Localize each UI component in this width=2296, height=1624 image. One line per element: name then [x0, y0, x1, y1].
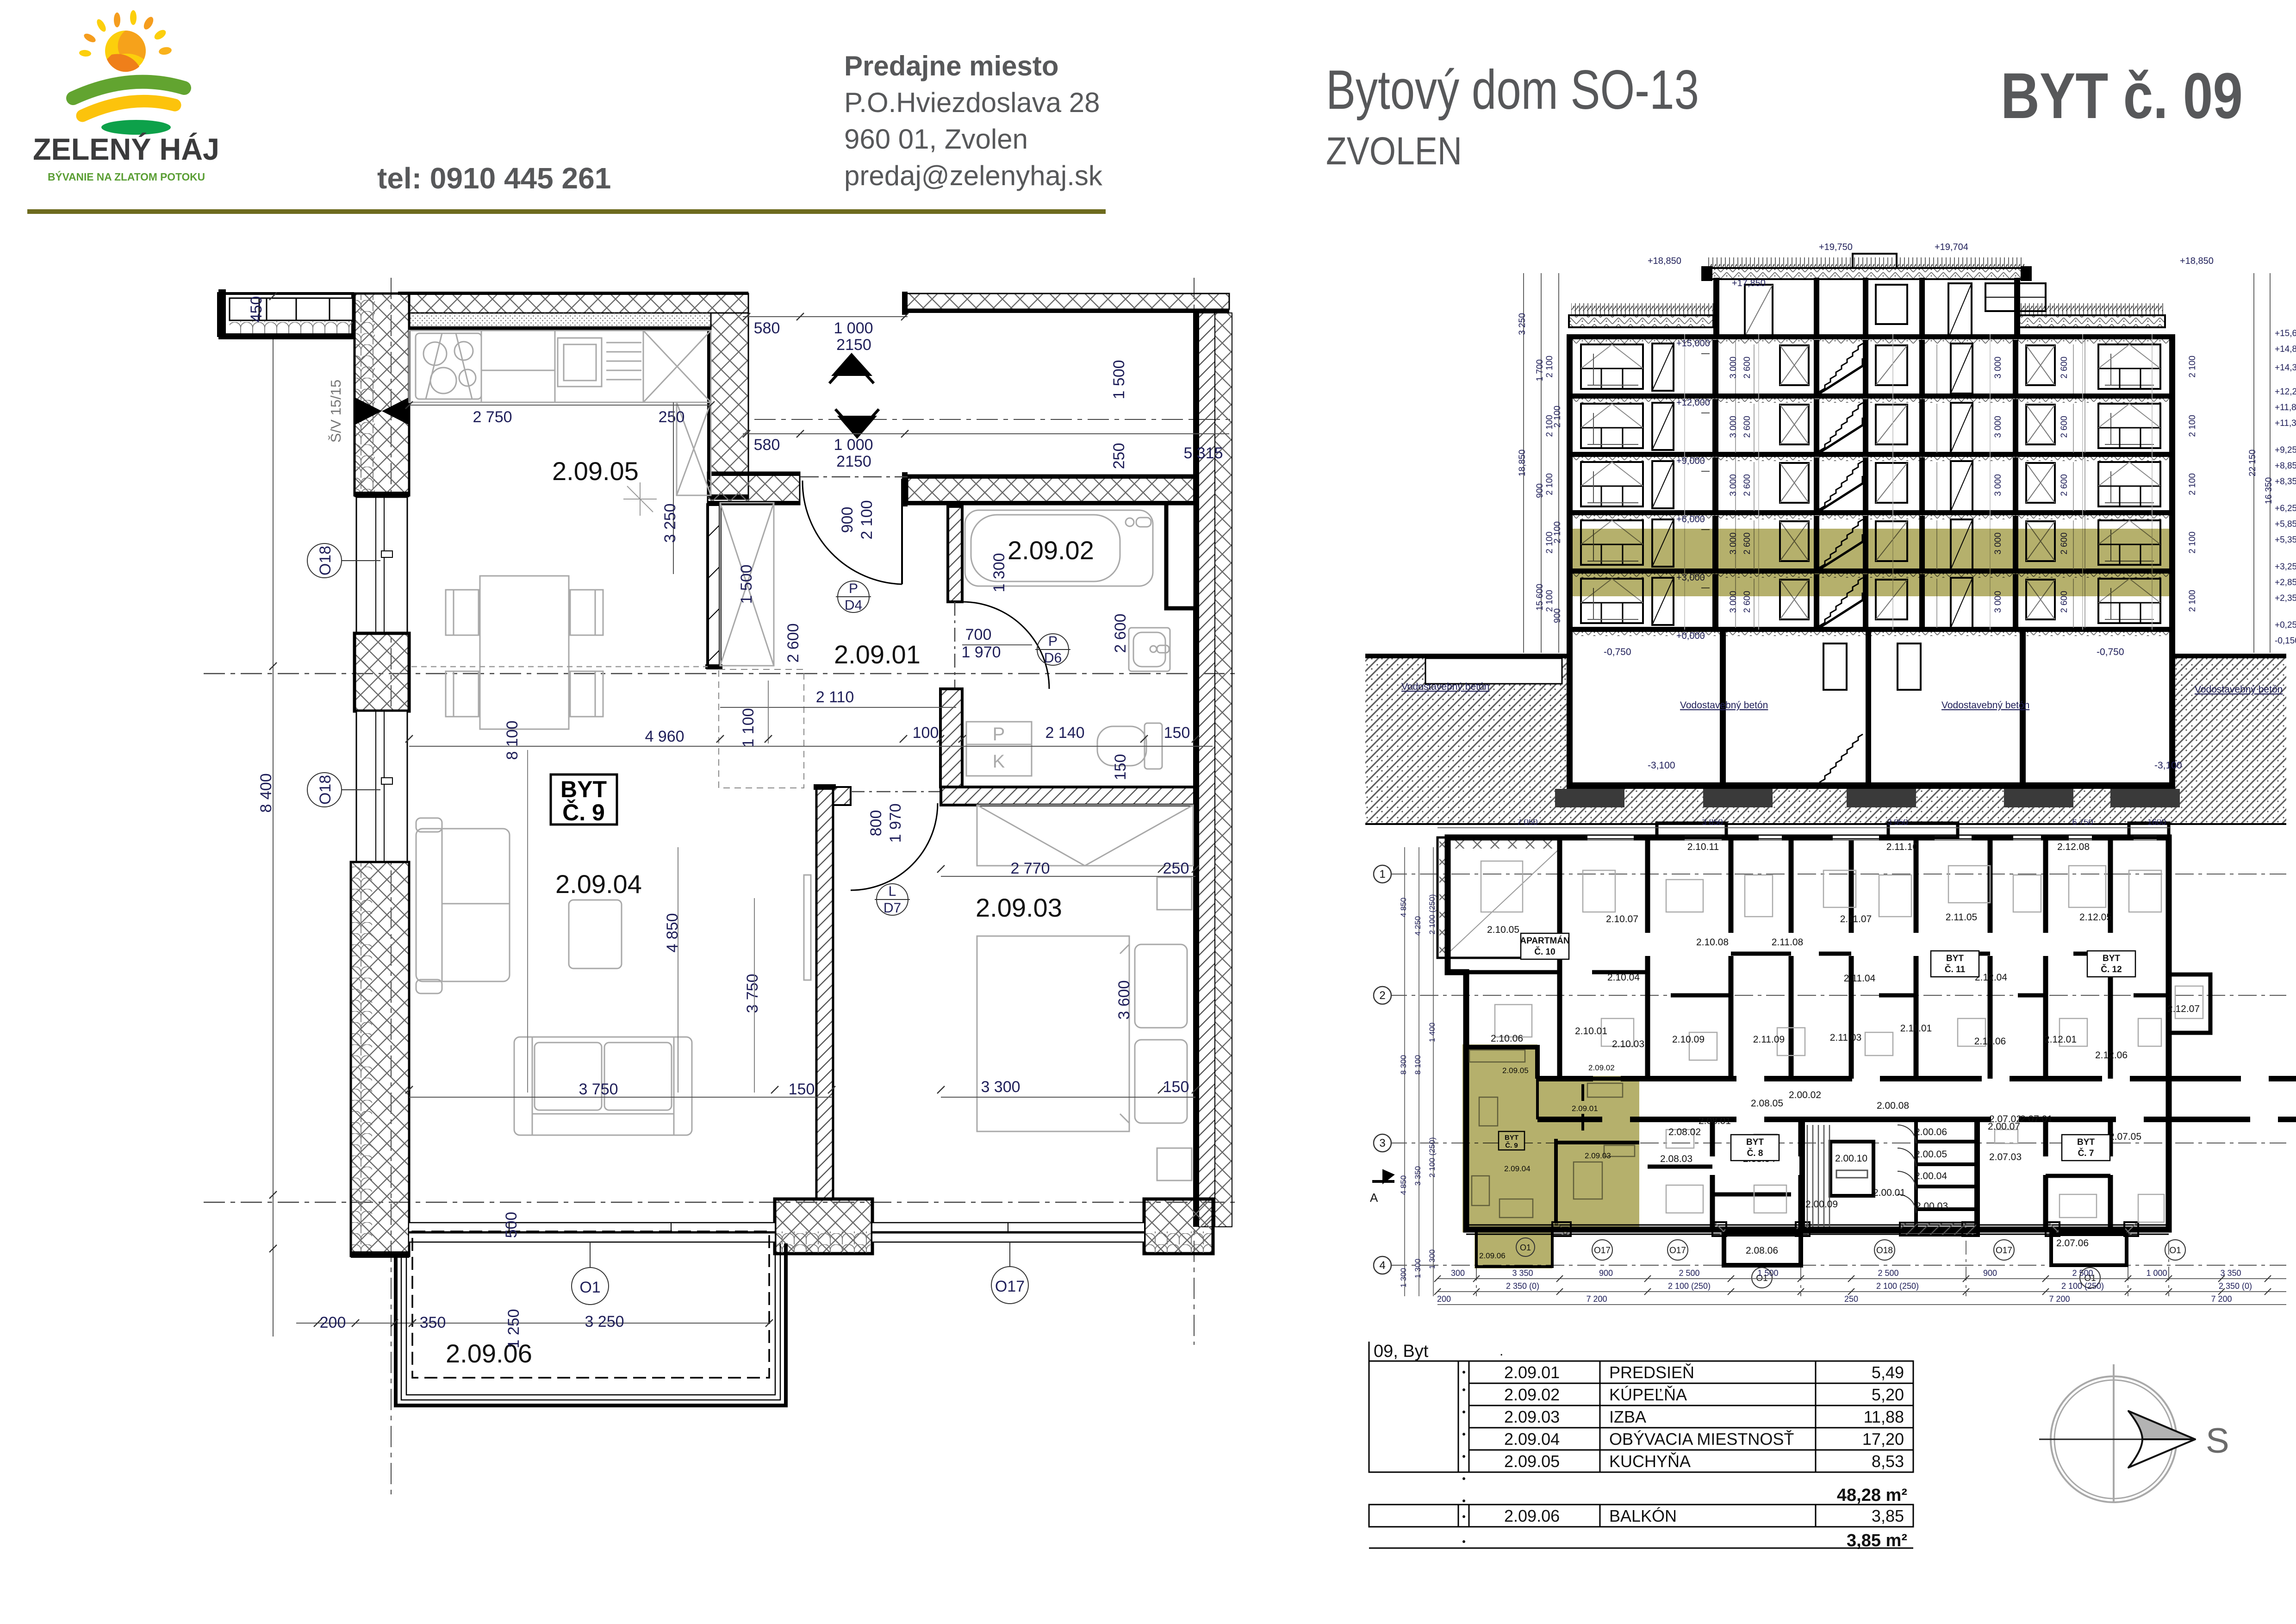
svg-text:250: 250: [1110, 443, 1128, 469]
svg-text:1 970: 1 970: [961, 643, 1001, 661]
svg-text:1 000: 1 000: [834, 436, 873, 454]
svg-text:2.08.05: 2.08.05: [1751, 1098, 1783, 1109]
svg-text:+8,850: +8,850: [2275, 461, 2296, 471]
svg-text:2.08.02: 2.08.02: [1668, 1127, 1701, 1137]
svg-text:800: 800: [867, 810, 885, 837]
svg-text:900: 900: [1535, 483, 1545, 498]
svg-text:3 350: 3 350: [2220, 1268, 2241, 1278]
svg-text:2.08.06: 2.08.06: [1746, 1245, 1778, 1256]
svg-text:7 200: 7 200: [2211, 1294, 2232, 1304]
svg-text:2 100 (250): 2 100 (250): [1428, 894, 1437, 935]
svg-text:250: 250: [1163, 860, 1189, 877]
svg-text:ZELENÝ HÁJ: ZELENÝ HÁJ: [33, 132, 219, 166]
svg-text:2.11.08: 2.11.08: [1772, 937, 1804, 948]
svg-text:2.11.03: 2.11.03: [1830, 1032, 1862, 1043]
svg-text:O18: O18: [1876, 1246, 1893, 1255]
svg-text:Č. 12: Č. 12: [2101, 964, 2122, 974]
svg-text:100: 100: [913, 724, 939, 742]
svg-text:2.10.09: 2.10.09: [1672, 1034, 1705, 1045]
svg-text:2 750: 2 750: [473, 408, 512, 426]
svg-text:2.12.07: 2.12.07: [2167, 1004, 2200, 1014]
svg-text:+19,750: +19,750: [1819, 242, 1853, 252]
svg-text:-3,100: -3,100: [2154, 760, 2182, 771]
svg-text:2.12.05: 2.12.05: [2079, 912, 2112, 923]
svg-text:2.11.06: 2.11.06: [1974, 1036, 2006, 1047]
svg-text:2.11.07: 2.11.07: [1840, 914, 1872, 924]
svg-text:3 350: 3 350: [1512, 1268, 1533, 1278]
svg-text:2.09.01: 2.09.01: [1504, 1363, 1560, 1382]
svg-text:O17: O17: [1594, 1246, 1611, 1255]
svg-text:-0,150: -0,150: [2275, 636, 2296, 646]
svg-text:3 600: 3 600: [1115, 980, 1133, 1019]
svg-text:Š/V 15/15: Š/V 15/15: [328, 380, 344, 443]
svg-text:BALKÓN: BALKÓN: [1609, 1506, 1677, 1525]
svg-text:1 970: 1 970: [887, 803, 904, 843]
svg-text:S: S: [2206, 1421, 2229, 1461]
svg-text:+0,000: +0,000: [1676, 631, 1705, 641]
svg-text:2.09.03: 2.09.03: [1504, 1407, 1560, 1426]
svg-text:Vodostavebný betón: Vodostavebný betón: [1941, 700, 2029, 711]
svg-text:250: 250: [659, 408, 685, 426]
svg-text:2.10.03: 2.10.03: [1612, 1039, 1644, 1049]
svg-text:7 200: 7 200: [2049, 1294, 2070, 1304]
svg-text:8 100: 8 100: [504, 720, 521, 760]
svg-text:.: .: [1500, 1343, 1503, 1359]
svg-text:2 100 (250): 2 100 (250): [1876, 1281, 1919, 1291]
svg-text:2.11.01: 2.11.01: [1900, 1023, 1932, 1034]
svg-text:+9,000: +9,000: [1676, 456, 1705, 466]
svg-text:4 960: 4 960: [645, 728, 684, 745]
svg-text:+5,850: +5,850: [2275, 519, 2296, 529]
svg-text:BYT č. 09: BYT č. 09: [2001, 59, 2243, 132]
svg-text:1 000: 1 000: [834, 319, 873, 337]
svg-text:+19,704: +19,704: [1935, 242, 1968, 252]
svg-text:+0,250: +0,250: [2275, 620, 2296, 630]
svg-text:APARTMÁN: APARTMÁN: [1520, 936, 1569, 946]
svg-text:+3,250: +3,250: [2275, 562, 2296, 572]
svg-text:1 250: 1 250: [505, 1309, 523, 1348]
svg-text:2.07.03: 2.07.03: [1989, 1152, 2022, 1162]
svg-text:BYT: BYT: [2103, 954, 2120, 963]
svg-text:2 500: 2 500: [2072, 1268, 2093, 1278]
svg-text:2150: 2150: [836, 453, 871, 470]
svg-text:2: 2: [1379, 989, 1385, 1002]
svg-text:BYT: BYT: [1746, 1137, 1764, 1147]
svg-text:5,49: 5,49: [1872, 1363, 1904, 1382]
svg-text:+9,250: +9,250: [2275, 445, 2296, 455]
svg-text:900: 900: [1553, 608, 1562, 623]
svg-text:2 100: 2 100: [1553, 406, 1562, 428]
svg-text:1 500: 1 500: [1757, 1268, 1778, 1278]
svg-text:300: 300: [1451, 1268, 1465, 1278]
svg-text:580: 580: [754, 436, 780, 454]
svg-text:2.00.01: 2.00.01: [1873, 1187, 1905, 1198]
svg-text:8,53: 8,53: [1872, 1452, 1904, 1471]
svg-text:2.07.05: 2.07.05: [2109, 1131, 2141, 1142]
svg-text:2.11.10: 2.11.10: [1886, 842, 1918, 852]
svg-text:2.12.06: 2.12.06: [2095, 1050, 2128, 1061]
svg-text:3: 3: [1379, 1137, 1385, 1149]
svg-text:18,850: 18,850: [1518, 450, 1527, 476]
svg-text:2.09.06: 2.09.06: [1504, 1506, 1560, 1525]
svg-text:KUCHYŇA: KUCHYŇA: [1609, 1452, 1691, 1471]
svg-text:2.00.09: 2.00.09: [1805, 1199, 1838, 1210]
svg-text:D6: D6: [1044, 650, 1062, 666]
svg-text:4: 4: [1379, 1259, 1385, 1272]
svg-text:7 050: 7 050: [1517, 819, 1537, 827]
svg-text:BÝVANIE NA ZLATOM POTOKU: BÝVANIE NA ZLATOM POTOKU: [48, 170, 205, 183]
svg-text:P: P: [993, 724, 1005, 744]
svg-text:4 850: 4 850: [1399, 1175, 1408, 1195]
svg-text:4 850: 4 850: [664, 913, 681, 952]
svg-text:+15,000: +15,000: [1676, 338, 1710, 349]
svg-text:2.09.04: 2.09.04: [1504, 1430, 1560, 1449]
svg-text:2.07.01: 2.07.01: [2020, 1114, 2053, 1124]
svg-text:2 100: 2 100: [858, 500, 876, 539]
svg-text:2.00.04: 2.00.04: [1915, 1171, 1947, 1181]
svg-text:2.09.02: 2.09.02: [1008, 536, 1094, 565]
svg-text:1600: 1600: [2147, 819, 2166, 827]
svg-text:2.09.05: 2.09.05: [1504, 1452, 1560, 1471]
svg-text:O17: O17: [1996, 1246, 2012, 1255]
svg-text:+12,250: +12,250: [2275, 387, 2296, 397]
svg-text:150: 150: [789, 1081, 815, 1098]
svg-text:O18: O18: [317, 546, 334, 575]
svg-text:1 100: 1 100: [740, 708, 757, 747]
svg-text:Č. 9: Č. 9: [562, 799, 605, 825]
svg-text:+18,850: +18,850: [1648, 256, 1681, 266]
svg-text:+2,350: +2,350: [2275, 593, 2296, 603]
svg-text:Č. 10: Č. 10: [1534, 947, 1555, 957]
svg-text:6 750: 6 750: [2072, 819, 2093, 827]
svg-text:2.09.01: 2.09.01: [834, 640, 921, 669]
svg-text:500: 500: [503, 1212, 520, 1238]
svg-text:KÚPEĽŇA: KÚPEĽŇA: [1609, 1385, 1687, 1404]
svg-text:2.10.07: 2.10.07: [1606, 914, 1638, 924]
svg-text:2.12.04: 2.12.04: [1975, 972, 2007, 983]
svg-text:+18,850: +18,850: [2180, 256, 2214, 266]
svg-text:2.10.05: 2.10.05: [1487, 924, 1519, 935]
svg-text:150: 150: [1112, 754, 1129, 781]
svg-text:2.00.03: 2.00.03: [1916, 1201, 1948, 1212]
svg-text:2.11.04: 2.11.04: [1844, 973, 1876, 984]
svg-text:P: P: [849, 581, 858, 596]
svg-text:1 300: 1 300: [1413, 1259, 1422, 1279]
svg-text:PREDSIEŇ: PREDSIEŇ: [1609, 1363, 1694, 1382]
svg-text:900: 900: [839, 507, 856, 533]
svg-text:2 350 (0): 2 350 (0): [1506, 1281, 1539, 1291]
svg-text:3 300: 3 300: [981, 1078, 1020, 1096]
svg-text:2 100: 2 100: [1553, 521, 1562, 543]
svg-text:1: 1: [1379, 868, 1385, 881]
svg-text:2 500: 2 500: [1679, 1268, 1699, 1278]
svg-text:3,85: 3,85: [1872, 1506, 1904, 1525]
svg-text:48,28 m²: 48,28 m²: [1837, 1486, 1907, 1505]
svg-text:+11,850: +11,850: [2275, 403, 2296, 412]
svg-text:2 100 (250): 2 100 (250): [2061, 1281, 2104, 1291]
svg-text:O1: O1: [2169, 1246, 2181, 1255]
svg-text:3 850: 3 850: [1702, 819, 1723, 827]
svg-text:O17: O17: [1669, 1246, 1686, 1255]
svg-text:1 300: 1 300: [1399, 1268, 1408, 1288]
svg-text:150: 150: [1163, 1078, 1189, 1096]
svg-text:2.09.03: 2.09.03: [976, 893, 1062, 922]
svg-text:4 250: 4 250: [1413, 916, 1422, 936]
svg-text:150: 150: [1164, 724, 1190, 742]
svg-text:2.09.04: 2.09.04: [555, 869, 642, 899]
svg-text:3 250: 3 250: [661, 503, 679, 543]
svg-text:2.00.10: 2.00.10: [1835, 1153, 1867, 1164]
svg-text:IZBA: IZBA: [1609, 1407, 1646, 1426]
svg-text:ZVOLEN: ZVOLEN: [1326, 129, 1462, 173]
svg-text:1 000: 1 000: [2146, 1268, 2167, 1278]
svg-text:+11,350: +11,350: [2275, 418, 2296, 428]
svg-text:200: 200: [1437, 1294, 1451, 1304]
svg-text:2.08.03: 2.08.03: [1660, 1154, 1692, 1164]
svg-text:5,20: 5,20: [1872, 1385, 1904, 1404]
svg-text:2.11.09: 2.11.09: [1753, 1034, 1785, 1045]
svg-text:2.09.02: 2.09.02: [1588, 1063, 1615, 1072]
svg-text:2 500: 2 500: [1878, 1268, 1898, 1278]
svg-text:2 100 (250): 2 100 (250): [1428, 1137, 1437, 1178]
svg-text:Bytový dom SO-13: Bytový dom SO-13: [1326, 59, 1699, 121]
svg-text:2.11.05: 2.11.05: [1946, 912, 1978, 923]
svg-text:O17: O17: [995, 1278, 1025, 1295]
svg-text:2150: 2150: [836, 336, 871, 354]
svg-text:2.12.01: 2.12.01: [2044, 1034, 2077, 1045]
svg-text:BYT: BYT: [560, 776, 607, 802]
svg-text:O1: O1: [1520, 1243, 1531, 1252]
svg-text:+15,600: +15,600: [2275, 329, 2296, 338]
svg-text:2 770: 2 770: [1010, 860, 1050, 877]
svg-text:200: 200: [320, 1314, 346, 1331]
svg-text:OBÝVACIA MIESTNOSŤ: OBÝVACIA MIESTNOSŤ: [1609, 1430, 1794, 1449]
svg-text:2.00.08: 2.00.08: [1877, 1100, 1909, 1111]
svg-text:Č. 8: Č. 8: [1747, 1148, 1763, 1158]
svg-text:O18: O18: [317, 775, 334, 805]
svg-text:2 350 (0): 2 350 (0): [2219, 1281, 2252, 1291]
svg-text:2.00.06: 2.00.06: [1915, 1127, 1947, 1137]
svg-text:Vodostavebný betón: Vodostavebný betón: [2195, 684, 2283, 695]
svg-text:K: K: [993, 751, 1005, 772]
svg-text:D4: D4: [845, 598, 862, 613]
svg-text:16 350: 16 350: [2264, 477, 2274, 504]
svg-text:17,20: 17,20: [1862, 1430, 1904, 1449]
svg-text:-0,750: -0,750: [1604, 647, 1631, 657]
svg-text:3 250: 3 250: [585, 1313, 624, 1330]
svg-text:L: L: [889, 884, 896, 899]
svg-text:+17,850: +17,850: [1732, 278, 1766, 288]
svg-text:Vodostavebný betón: Vodostavebný betón: [1401, 681, 1489, 692]
svg-text:O1: O1: [579, 1279, 600, 1296]
svg-text:P: P: [1048, 634, 1058, 649]
svg-text:900: 900: [1983, 1268, 1997, 1278]
svg-text:2.10.01: 2.10.01: [1575, 1026, 1607, 1037]
svg-text:3 250: 3 250: [1518, 313, 1527, 335]
svg-text:2.07.02: 2.07.02: [1989, 1114, 2022, 1124]
svg-text:900: 900: [1599, 1268, 1613, 1278]
svg-text:09, Byt: 09, Byt: [1374, 1342, 1429, 1361]
svg-text:+2,850: +2,850: [2275, 578, 2296, 587]
svg-text:D7: D7: [884, 900, 901, 916]
svg-text:+5,350: +5,350: [2275, 535, 2296, 545]
svg-text:1 300: 1 300: [990, 553, 1008, 592]
svg-text:-3,100: -3,100: [1648, 760, 1675, 771]
svg-text:7 200: 7 200: [1586, 1294, 1607, 1304]
svg-text:580: 580: [754, 319, 780, 337]
svg-text:700: 700: [965, 626, 992, 643]
svg-text:3 750: 3 750: [579, 1081, 618, 1098]
svg-text:1 500: 1 500: [738, 564, 755, 604]
svg-text:+12,000: +12,000: [1676, 398, 1710, 408]
svg-text:250: 250: [1844, 1294, 1858, 1304]
svg-text:2 600: 2 600: [1112, 613, 1129, 653]
svg-text:Č. 11: Č. 11: [1945, 964, 1966, 974]
svg-text:3 750: 3 750: [744, 974, 761, 1013]
svg-text:2 110: 2 110: [816, 688, 854, 706]
svg-text:2.09.05: 2.09.05: [552, 456, 639, 486]
svg-text:1 500: 1 500: [1110, 360, 1128, 399]
svg-text:5 315: 5 315: [1183, 444, 1223, 462]
svg-text:2.07.06: 2.07.06: [2056, 1238, 2089, 1249]
svg-text:BYT: BYT: [2077, 1137, 2095, 1147]
svg-text:4 850: 4 850: [1399, 898, 1408, 918]
svg-text:2.10.08: 2.10.08: [1696, 937, 1729, 948]
svg-text:3 950: 3 950: [1887, 819, 1908, 827]
svg-text:2.10.11: 2.10.11: [1687, 842, 1719, 852]
svg-text:1 300: 1 300: [1428, 1249, 1437, 1269]
svg-text:2 100 (250): 2 100 (250): [1668, 1281, 1711, 1291]
svg-text:22 150: 22 150: [2248, 450, 2258, 476]
svg-text:+14,850: +14,850: [2275, 344, 2296, 354]
svg-text:+6,250: +6,250: [2275, 504, 2296, 513]
svg-text:Vodostavebný betón: Vodostavebný betón: [1680, 700, 1768, 711]
svg-text:+6,000: +6,000: [1676, 514, 1705, 525]
svg-text:2.10.06: 2.10.06: [1491, 1033, 1523, 1044]
svg-text:15 600: 15 600: [1535, 584, 1545, 611]
svg-text:8 300: 8 300: [1399, 1055, 1408, 1075]
svg-text:2.09.02: 2.09.02: [1504, 1385, 1560, 1404]
svg-text:1 700: 1 700: [1535, 359, 1545, 381]
svg-text:2.10.04: 2.10.04: [1607, 972, 1640, 983]
svg-text:2.00.02: 2.00.02: [1789, 1090, 1821, 1100]
svg-text:2 140: 2 140: [1045, 724, 1084, 742]
svg-text:11,88: 11,88: [1864, 1407, 1904, 1426]
svg-text:+8,350: +8,350: [2275, 477, 2296, 487]
svg-text:450: 450: [248, 296, 265, 323]
svg-text:2 600: 2 600: [784, 623, 802, 662]
svg-text:BYT: BYT: [1946, 954, 1964, 963]
svg-text:8 400: 8 400: [257, 773, 275, 812]
svg-text:+14,350: +14,350: [2275, 363, 2296, 373]
svg-text:-0,750: -0,750: [2097, 647, 2124, 657]
svg-text:350: 350: [420, 1314, 446, 1331]
svg-text:A: A: [1370, 1191, 1378, 1205]
svg-text:2.00.05: 2.00.05: [1915, 1149, 1947, 1160]
svg-text:Č. 7: Č. 7: [2078, 1148, 2094, 1158]
svg-text:8 100: 8 100: [1413, 1055, 1422, 1075]
svg-text:3 350: 3 350: [1413, 1166, 1422, 1186]
svg-text:1 400: 1 400: [1428, 1023, 1437, 1043]
svg-text:2.12.08: 2.12.08: [2057, 842, 2090, 852]
svg-text:2.08.01: 2.08.01: [1699, 1116, 1731, 1126]
